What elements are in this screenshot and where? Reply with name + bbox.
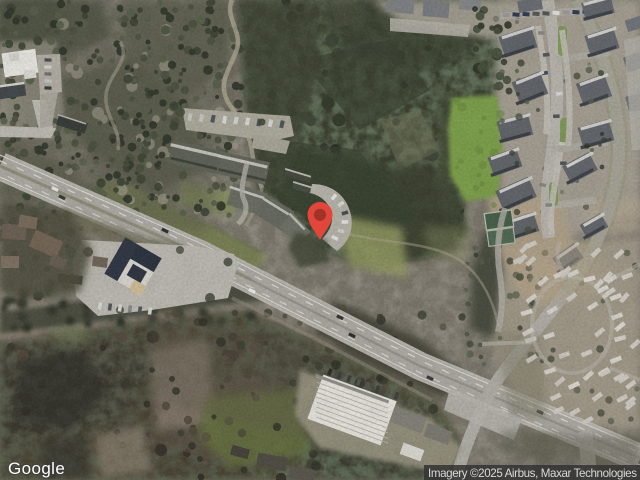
svg-text:Imagery ©2025 Airbus, Maxar Te: Imagery ©2025 Airbus, Maxar Technologies bbox=[428, 467, 637, 480]
svg-text:Google: Google bbox=[8, 459, 65, 478]
